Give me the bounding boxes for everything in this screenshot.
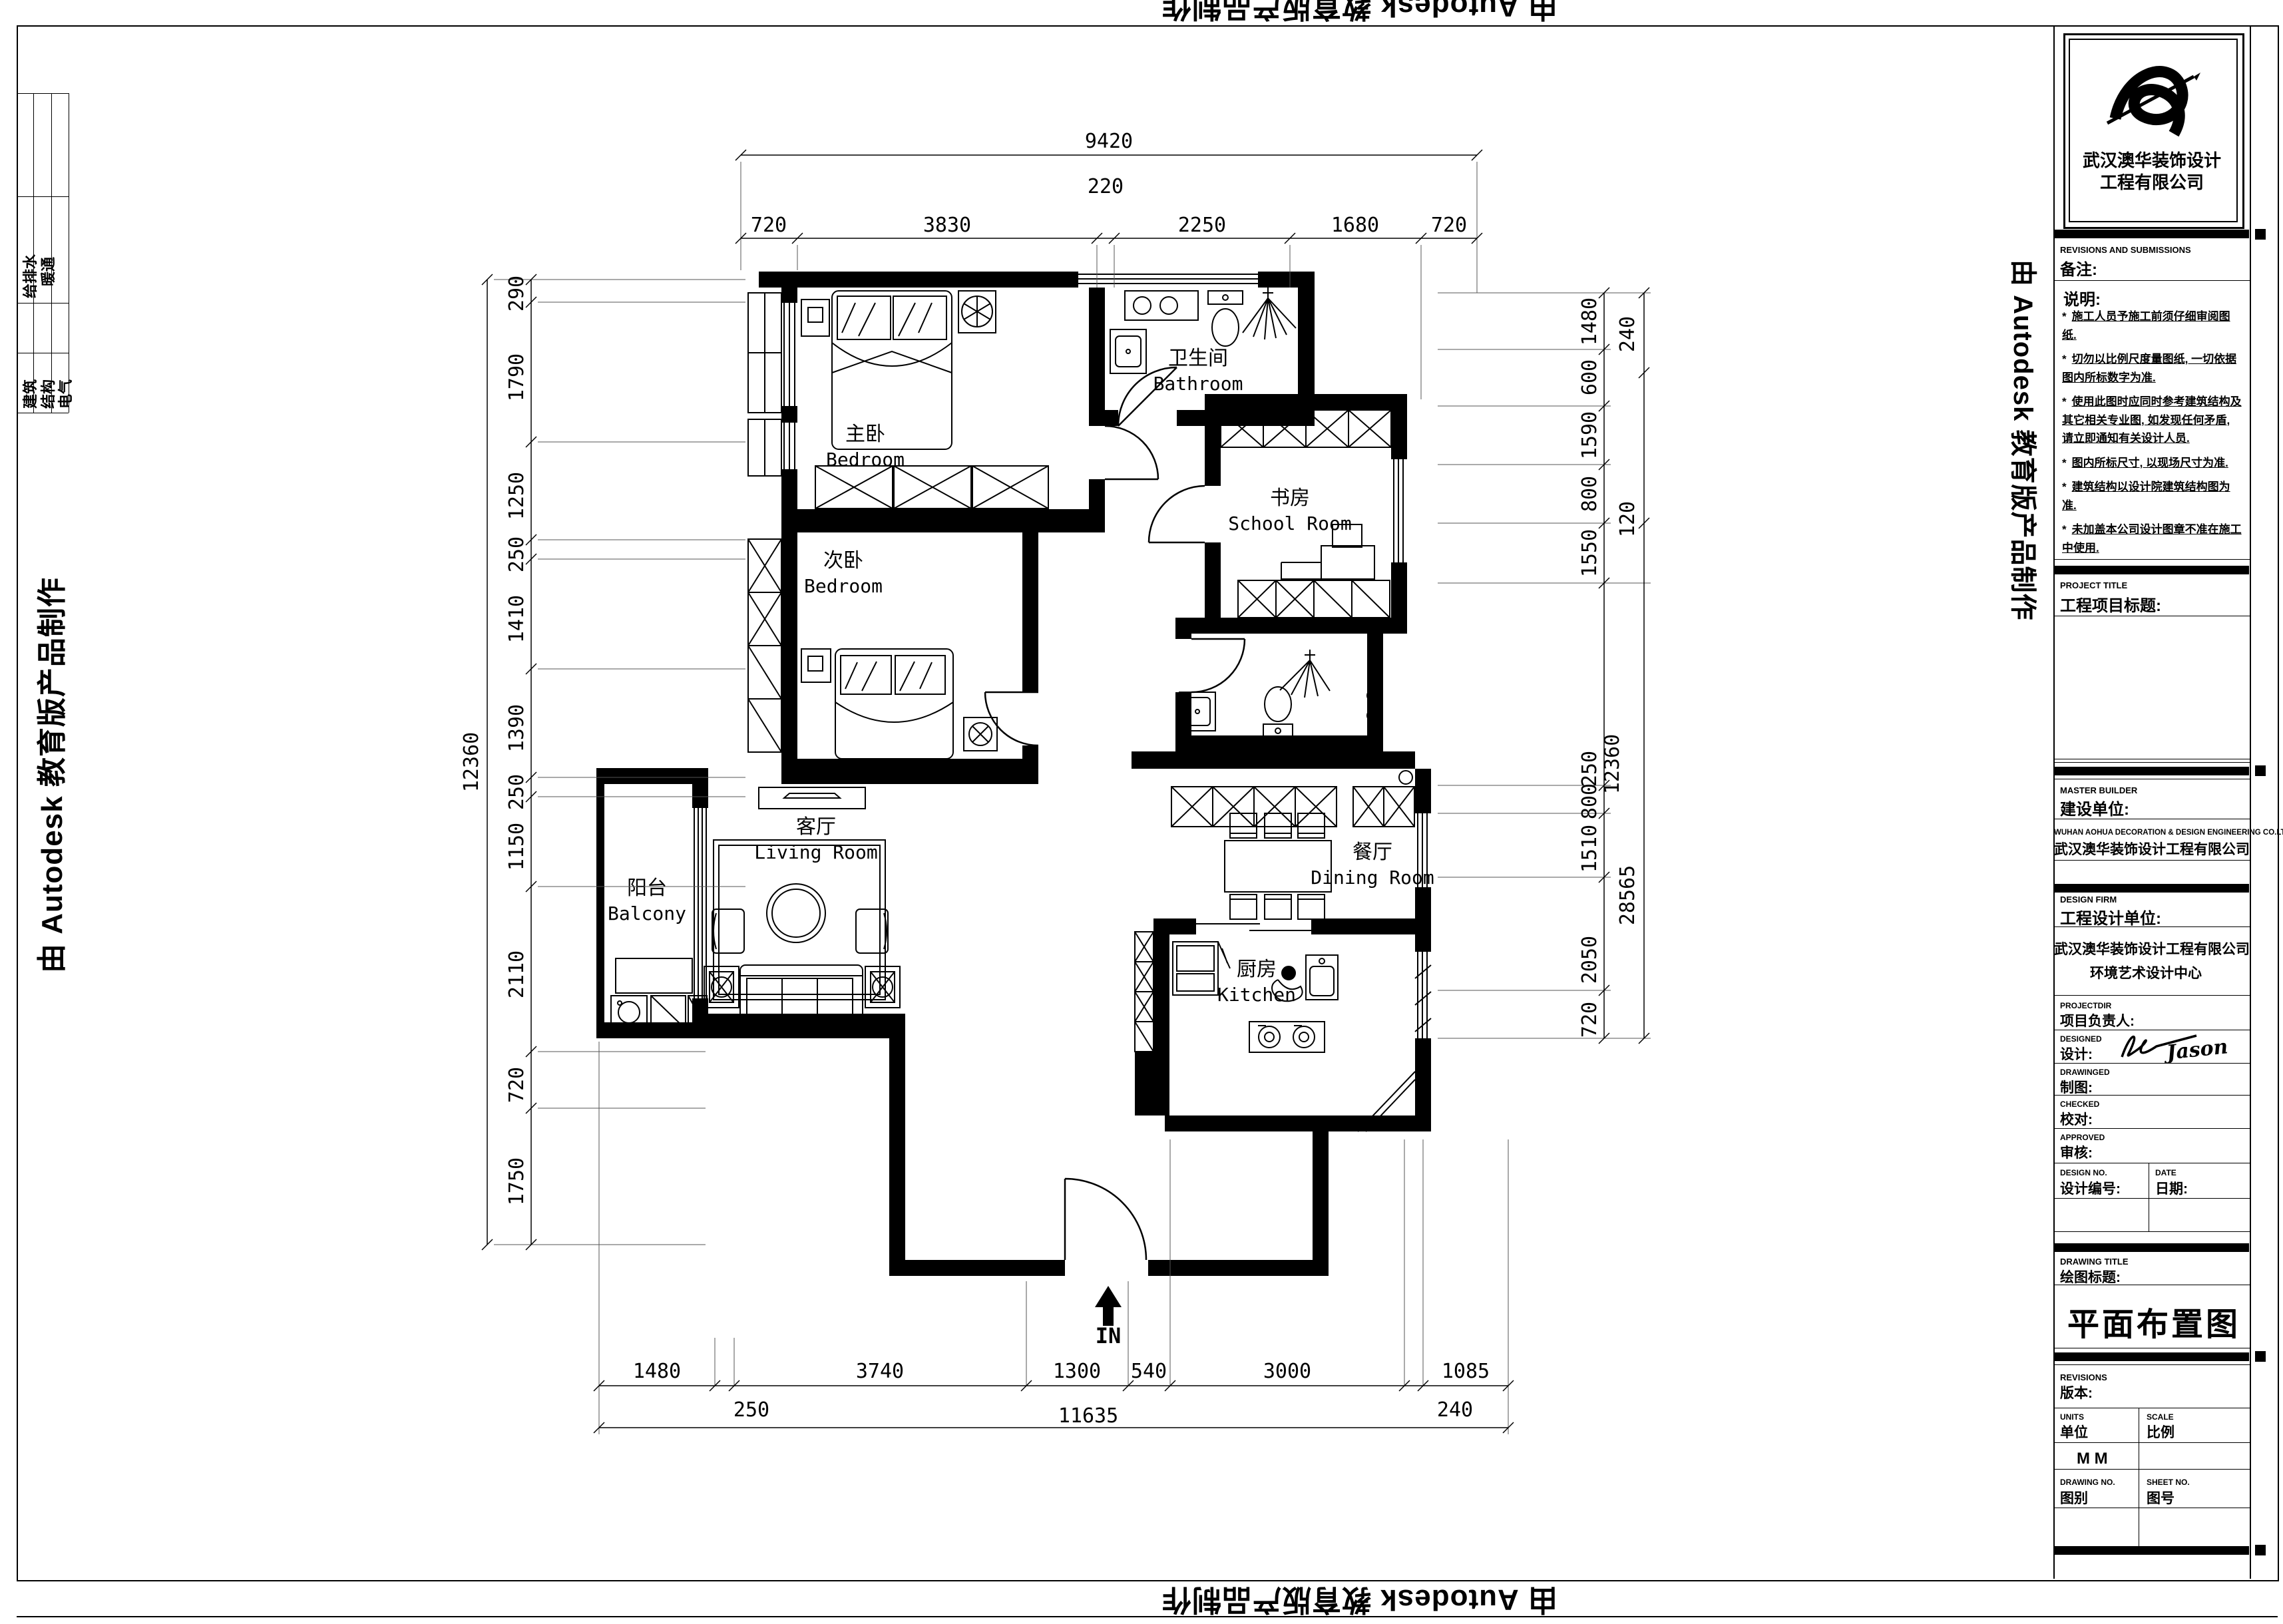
room-label-kitchen-en: Kitchen (1217, 984, 1296, 1006)
svg-text:1300: 1300 (1053, 1360, 1101, 1383)
drawing-title-value: 平面布置图 (2058, 1298, 2250, 1344)
second-bed (835, 649, 953, 759)
svg-text:3830: 3830 (923, 214, 971, 237)
room-label-second-en: Bedroom (804, 575, 883, 597)
drawing-title-en: DRAWING TITLE (2060, 1257, 2129, 1267)
room-label-school-cn: 书房 (1270, 487, 1310, 510)
svg-text:800: 800 (1578, 783, 1601, 819)
room-label-second-cn: 次卧 (823, 549, 863, 572)
room-label-balcony-en: Balcony (608, 903, 686, 924)
drawing-no-cn: 图别 (2060, 1488, 2088, 1508)
design-firm-en: DESIGN FIRM (2060, 895, 2117, 905)
svg-text:720: 720 (751, 214, 787, 237)
revisions-header-en: REVISIONS AND SUBMISSIONS (2060, 245, 2191, 255)
dim-right-total: 12360 (1601, 734, 1624, 794)
room-label-bath-cn: 卫生间 (1168, 347, 1228, 370)
logo-company-line1: 武汉澳华装饰设计 (2065, 150, 2238, 172)
svg-text:720: 720 (1578, 1002, 1601, 1038)
entry-arrow-icon (1095, 1286, 1122, 1326)
room-label-master-en: Bedroom (826, 449, 905, 471)
room-label-living-cn: 客厅 (796, 815, 836, 839)
svg-text:1510: 1510 (1578, 825, 1601, 873)
svg-text:2050: 2050 (1578, 936, 1601, 984)
svg-text:120: 120 (1616, 501, 1639, 537)
designed-cn: 设计: (2060, 1044, 2093, 1064)
room-label-balcony-cn: 阳台 (627, 877, 667, 900)
checked-en: CHECKED (2060, 1100, 2099, 1109)
school-cabinet-icon (1238, 580, 1390, 618)
svg-text:1410: 1410 (505, 595, 528, 643)
revisions2-en: REVISIONS (2060, 1372, 2107, 1382)
room-label-living-en: Living Room (754, 841, 877, 863)
design-no-cn: 设计编号: (2060, 1178, 2121, 1198)
svg-text:1085: 1085 (1442, 1360, 1490, 1383)
revisions-header-cn: 备注: (2060, 256, 2097, 280)
approved-en: APPROVED (2060, 1133, 2105, 1142)
logo-company-line2: 工程有限公司 (2065, 172, 2238, 194)
svg-text:250: 250 (733, 1398, 769, 1422)
room-label-school-en: School Room (1228, 512, 1351, 534)
toilet-icon (1208, 291, 1243, 346)
revisions2-cn: 版本: (2060, 1382, 2093, 1402)
svg-text:3000: 3000 (1263, 1360, 1311, 1383)
svg-text:1390: 1390 (505, 704, 528, 752)
kitchen-sink-icon (1306, 955, 1338, 1000)
dim-bottom-total: 11635 (1058, 1404, 1118, 1428)
room-labels: 主卧 Bedroom 卫生间 Bathroom 书房 School Room 次… (608, 347, 1434, 1006)
svg-text:3740: 3740 (856, 1360, 904, 1383)
scale-cn: 比例 (2147, 1422, 2175, 1442)
armchair-icon (712, 909, 888, 953)
project-title-cn: 工程项目标题: (2060, 592, 2161, 616)
kitchen-cabinet-icon (1135, 932, 1153, 1052)
projectdir-en: PROJECTDIR (2060, 1001, 2111, 1010)
svg-text:800: 800 (1578, 476, 1601, 512)
date-en: DATE (2155, 1168, 2177, 1177)
room-label-kitchen-cn: 厨房 (1237, 958, 1277, 981)
checked-cn: 校对: (2060, 1109, 2093, 1129)
designed-en: DESIGNED (2060, 1034, 2102, 1044)
units-en: UNITS (2060, 1412, 2084, 1422)
master-builder-cn: 建设单位: (2060, 796, 2129, 819)
stove-icon (1249, 1022, 1325, 1052)
logo-box: 武汉澳华装饰设计 工程有限公司 (2063, 33, 2244, 229)
aohua-logo-icon (2102, 49, 2202, 142)
svg-text:1790: 1790 (505, 353, 528, 401)
sheet-no-en: SHEET NO. (2147, 1478, 2190, 1487)
date-cn: 日期: (2155, 1178, 2188, 1198)
drawing-no-en: DRAWING NO. (2060, 1478, 2115, 1487)
design-firm-cn: 工程设计单位: (2060, 905, 2161, 928)
desk-icon (1321, 546, 1374, 579)
sheet-no-cn: 图号 (2147, 1488, 2175, 1508)
room-label-bath-en: Bathroom (1153, 373, 1243, 395)
drawing-title-cn: 绘图标题: (2060, 1267, 2121, 1287)
svg-text:1250: 1250 (505, 472, 528, 520)
svg-text:720: 720 (1431, 214, 1467, 237)
toilet2-icon (1263, 687, 1293, 737)
design-no-en: DESIGN NO. (2060, 1168, 2107, 1177)
wardrobe-icon (815, 466, 1048, 508)
design-firm-value-2: 环境艺术设计中心 (2090, 962, 2202, 982)
svg-text:1680: 1680 (1331, 214, 1379, 237)
approved-cn: 审核: (2060, 1142, 2093, 1162)
svg-text:1590: 1590 (1578, 411, 1601, 459)
round-table (767, 884, 825, 942)
svg-text:540: 540 (1131, 1360, 1167, 1383)
cad-sheet: { "watermark": { "text": "由 Autodesk 教育版… (0, 0, 2283, 1620)
room-label-dining-cn: 餐厅 (1352, 841, 1392, 864)
projectdir-cn: 项目负责人: (2060, 1010, 2135, 1030)
entry-label-in: IN (1096, 1323, 1122, 1348)
master-builder-value-en: WUHAN AOHUA DECORATION & DESIGN ENGINEER… (2054, 829, 2250, 837)
scale-en: SCALE (2147, 1412, 2174, 1422)
svg-text:600: 600 (1578, 359, 1601, 395)
drawinged-cn: 制图: (2060, 1077, 2093, 1097)
svg-text:250: 250 (1578, 751, 1601, 787)
shower-light-icon (1243, 288, 1296, 339)
svg-text:240: 240 (1437, 1398, 1473, 1422)
units-cn: 单位 (2060, 1422, 2088, 1442)
room-label-dining-en: Dining Room (1311, 867, 1434, 889)
dining-cabinet-icon (1171, 787, 1414, 827)
design-firm-value-1: 武汉澳华装饰设计工程有限公司 (2054, 938, 2250, 958)
svg-text:720: 720 (505, 1067, 528, 1103)
floor-plan: IN 主卧 Bedroom 卫生间 Bathroom 书房 School Roo… (0, 0, 2283, 1620)
room-label-master-cn: 主卧 (845, 423, 885, 446)
dim-left-total: 12360 (460, 732, 483, 792)
master-builder-en: MASTER BUILDER (2060, 785, 2137, 795)
svg-text:250: 250 (505, 536, 528, 572)
svg-text:240: 240 (1616, 316, 1639, 352)
svg-text:220: 220 (1088, 175, 1124, 198)
notes-list: *施工人员予施工前须仔细审阅图纸. *切勿以比例尺度量图纸, 一切依据图内所标数… (2062, 307, 2243, 563)
side-table-icon (704, 966, 900, 1008)
svg-text:28565: 28565 (1616, 865, 1639, 925)
extension-lines (494, 162, 1651, 1434)
svg-text:290: 290 (505, 276, 528, 311)
bay-cabinet-icon (748, 539, 781, 752)
drawinged-en: DRAWINGED (2060, 1068, 2110, 1077)
svg-text:1750: 1750 (505, 1157, 528, 1205)
svg-text:2250: 2250 (1178, 214, 1226, 237)
svg-text:1550: 1550 (1578, 529, 1601, 577)
units-value: M M (2077, 1450, 2108, 1468)
dim-top-total: 9420 (1085, 130, 1133, 153)
svg-text:2110: 2110 (505, 950, 528, 998)
svg-text:1150: 1150 (505, 823, 528, 871)
tv-icon (784, 793, 840, 798)
svg-text:1480: 1480 (1578, 298, 1601, 345)
master-builder-value-cn: 武汉澳华装饰设计工程有限公司 (2054, 839, 2250, 859)
svg-text:250: 250 (505, 774, 528, 810)
notes-title: 说明: (2063, 286, 2101, 309)
project-title-en: PROJECT TITLE (2060, 580, 2127, 590)
basin-icon (1134, 297, 1151, 314)
svg-text:1480: 1480 (633, 1360, 681, 1383)
